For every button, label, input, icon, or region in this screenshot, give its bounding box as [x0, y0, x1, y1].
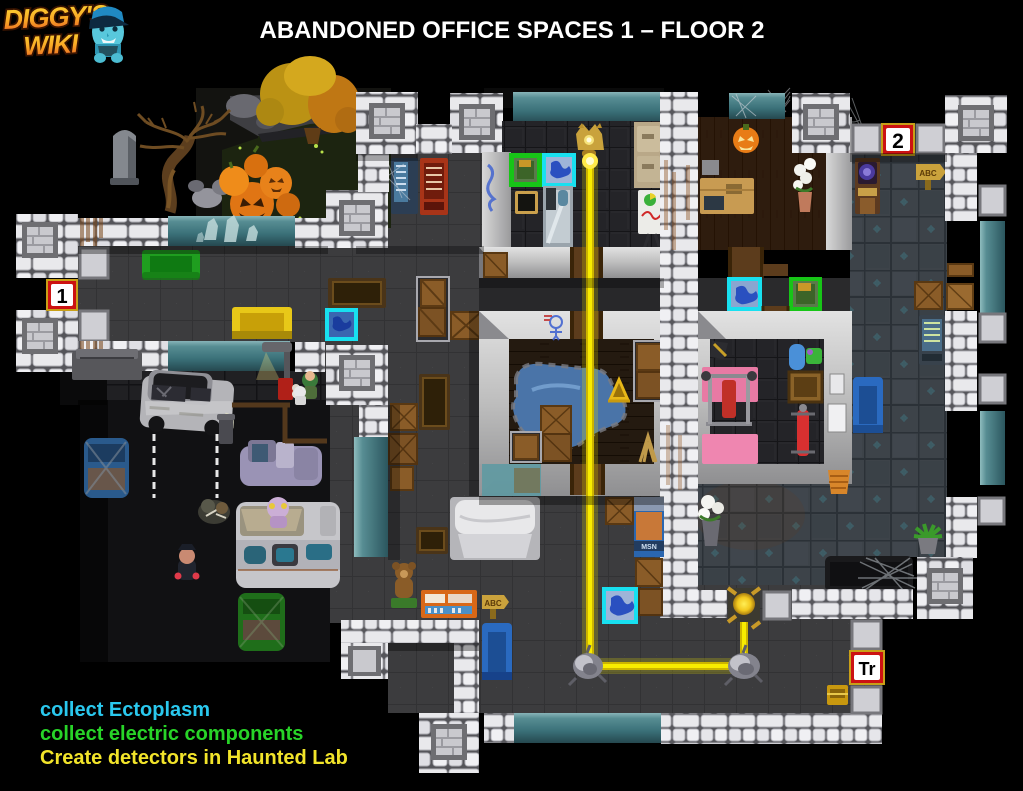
svg-text:ABC: ABC — [484, 599, 502, 608]
svg-text:Tr: Tr — [858, 659, 875, 679]
svg-text:collect Ectoplasm: collect Ectoplasm — [40, 699, 210, 721]
svg-text:ABANDONED OFFICE SPACES 1 – FL: ABANDONED OFFICE SPACES 1 – FLOOR 2 — [260, 17, 765, 44]
svg-text:2: 2 — [892, 130, 904, 153]
svg-text:ABC: ABC — [919, 169, 937, 178]
svg-text:Create detectors in Haunted La: Create detectors in Haunted Lab — [40, 747, 348, 769]
svg-text:1: 1 — [56, 286, 67, 308]
svg-text:WIKI: WIKI — [23, 28, 80, 61]
svg-text:collect electric components: collect electric components — [40, 723, 303, 745]
svg-text:MSN: MSN — [641, 544, 657, 551]
